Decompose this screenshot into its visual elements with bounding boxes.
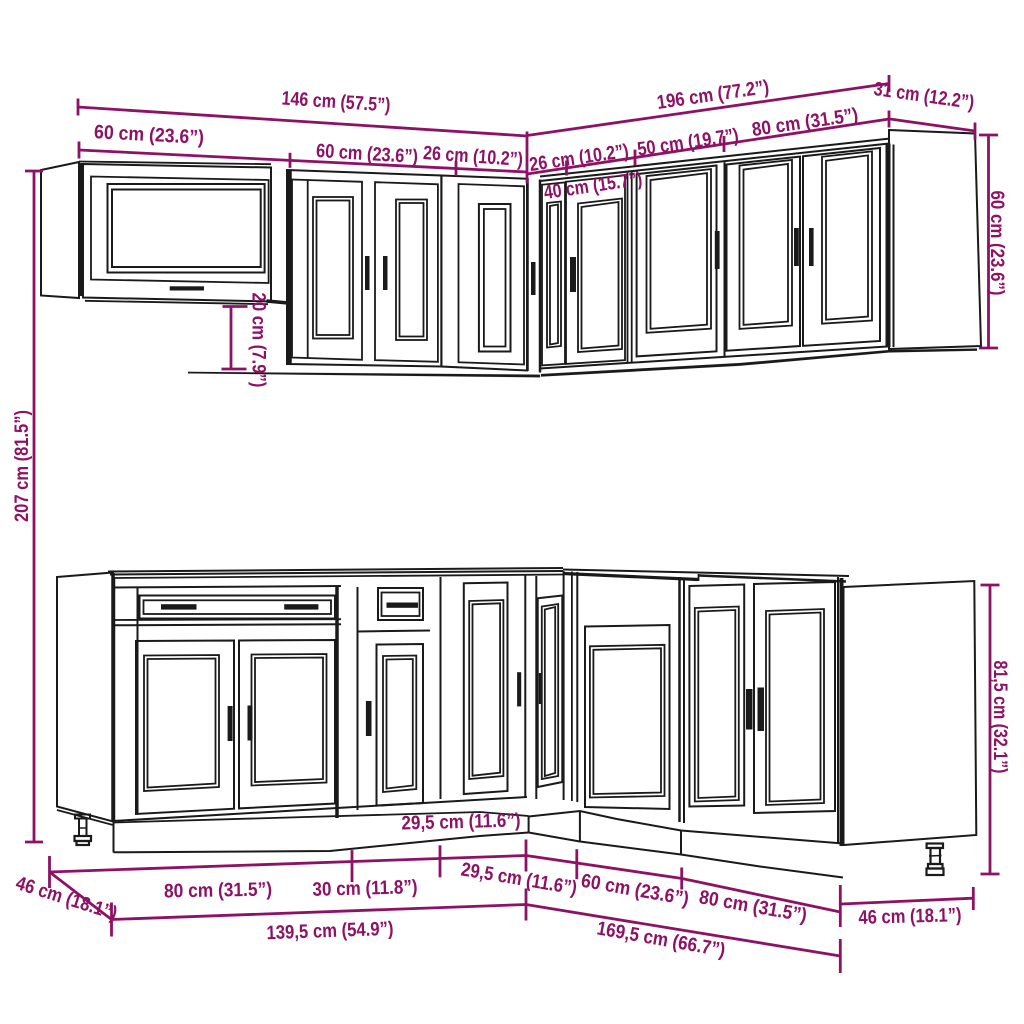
svg-text:29,5 cm (11.6”): 29,5 cm (11.6”) — [401, 809, 521, 834]
svg-text:81,5 cm (32.1”): 81,5 cm (32.1”) — [989, 661, 1011, 774]
svg-text:60 cm (23.6”): 60 cm (23.6”) — [986, 191, 1008, 296]
svg-text:80 cm (31.5”): 80 cm (31.5”) — [164, 879, 272, 903]
svg-text:46 cm (18.1”): 46 cm (18.1”) — [858, 904, 962, 929]
svg-text:207 cm (81.5”): 207 cm (81.5”) — [11, 410, 33, 522]
svg-text:139,5 cm (54.9”): 139,5 cm (54.9”) — [266, 918, 394, 944]
svg-text:20 cm (7.9”): 20 cm (7.9”) — [248, 293, 270, 388]
svg-text:30 cm (11.8”): 30 cm (11.8”) — [312, 876, 418, 901]
